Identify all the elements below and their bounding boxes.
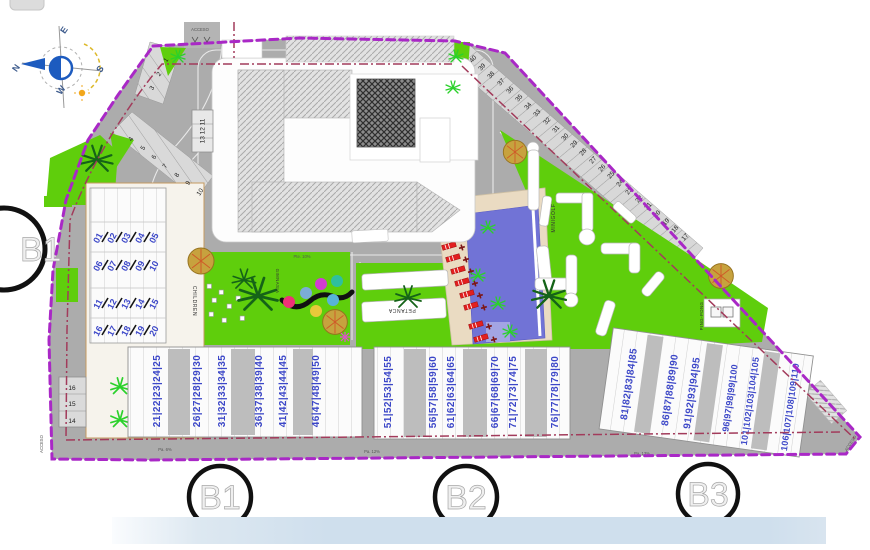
site-plan-drawing: 01 02 03 04 05 06 07 08 09 10 11 12 13 1…	[0, 0, 870, 550]
road-grade-label: Pa. 6%	[158, 447, 172, 452]
stall-number: 16	[68, 385, 76, 392]
building-annex	[420, 118, 450, 162]
section-marker-b3: B3	[678, 464, 738, 524]
marker-label: B3	[687, 476, 729, 514]
plot-group: 41|42|43|44|45	[278, 355, 289, 427]
compass-s: S	[94, 64, 106, 75]
site-plan-canvas: 01 02 03 04 05 06 07 08 09 10 11 12 13 1…	[0, 0, 870, 550]
petanca-label: PETANCA	[388, 307, 416, 313]
compass-rose: N E S W	[10, 25, 106, 108]
plot-group: 36|37|38|39|40	[254, 355, 265, 427]
marker-label: B1	[20, 231, 62, 269]
gym-equipment-dot	[310, 305, 322, 317]
gym-equipment-dot	[331, 275, 343, 287]
plot-group: 51|52|53|54|55	[383, 356, 394, 428]
gym-equipment-dot	[283, 296, 295, 308]
access-top-label: ACCESO	[191, 27, 209, 32]
gym-label: GIMNASIA	[275, 269, 280, 294]
main-building	[212, 36, 478, 242]
minigolf-label: MINIGOLF	[551, 204, 557, 233]
stall-box-14-15-16: 16 15 14	[59, 377, 86, 427]
pink-plant	[340, 332, 350, 342]
gym-equipment-dot	[300, 287, 312, 299]
green-left-rect	[56, 268, 78, 302]
top-access-road-stub	[184, 22, 220, 48]
plot-group: 76|77|78|79|80	[550, 356, 561, 428]
corner-chip	[10, 0, 44, 10]
plot-group: 71|72|73|74|75	[508, 356, 519, 428]
plot-group: 61|62|63|64|65	[446, 356, 457, 428]
stall-number: 13 12 11	[200, 118, 207, 143]
gym-equipment-dot	[327, 294, 339, 306]
marker-label: B2	[445, 479, 487, 517]
compass-n: N	[10, 62, 22, 73]
plot-group: 66|67|68|69|70	[490, 356, 501, 428]
access-bottom-left-label: ACCESO	[39, 434, 44, 452]
plot-group: 46|47|48|49|50	[311, 355, 322, 427]
stall-number: 15	[68, 401, 76, 408]
bottom-scale-bar	[112, 517, 826, 544]
bottom-block-a	[128, 347, 362, 437]
stall-number: 14	[68, 418, 76, 425]
bottom-block-b	[374, 347, 570, 439]
plot-group: 31|32|33|34|35	[217, 355, 228, 427]
plot-group: 21|22|23|24|25	[152, 355, 163, 427]
plot-group: 56|57|58|59|60	[428, 356, 439, 428]
gym-equipment-dot	[315, 278, 327, 290]
sun-icon	[74, 85, 90, 101]
road-grade-label: Pa. 12%	[364, 449, 380, 454]
pool-steps	[486, 322, 510, 342]
compass-w: W	[54, 83, 67, 96]
top-white-building	[222, 40, 262, 58]
ping-pong-label: PING-PONG	[699, 301, 704, 330]
plot-group: 26|27|28|29|30	[192, 355, 203, 427]
north-arrow-icon	[21, 58, 45, 70]
marker-label: B1	[199, 479, 241, 517]
stall-box-13-12-11: 13 12 11	[192, 110, 213, 152]
road-grade-label: Pte. 10%	[294, 254, 311, 259]
dark-roof-building	[357, 79, 415, 147]
children-label: CHILDREN	[191, 286, 197, 316]
